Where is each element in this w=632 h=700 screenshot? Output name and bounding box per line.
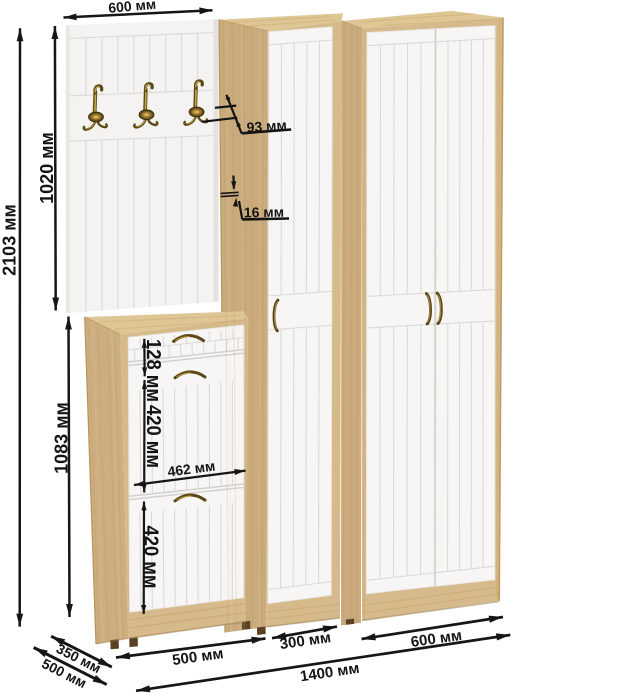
svg-text:16 мм: 16 мм	[244, 204, 284, 221]
svg-text:420 мм: 420 мм	[140, 526, 162, 589]
svg-text:2103 мм: 2103 мм	[0, 204, 20, 276]
svg-text:420 мм: 420 мм	[142, 405, 164, 468]
svg-text:1020 мм: 1020 мм	[37, 132, 57, 204]
svg-text:1083 мм: 1083 мм	[51, 402, 71, 474]
svg-text:93 мм: 93 мм	[246, 117, 287, 136]
